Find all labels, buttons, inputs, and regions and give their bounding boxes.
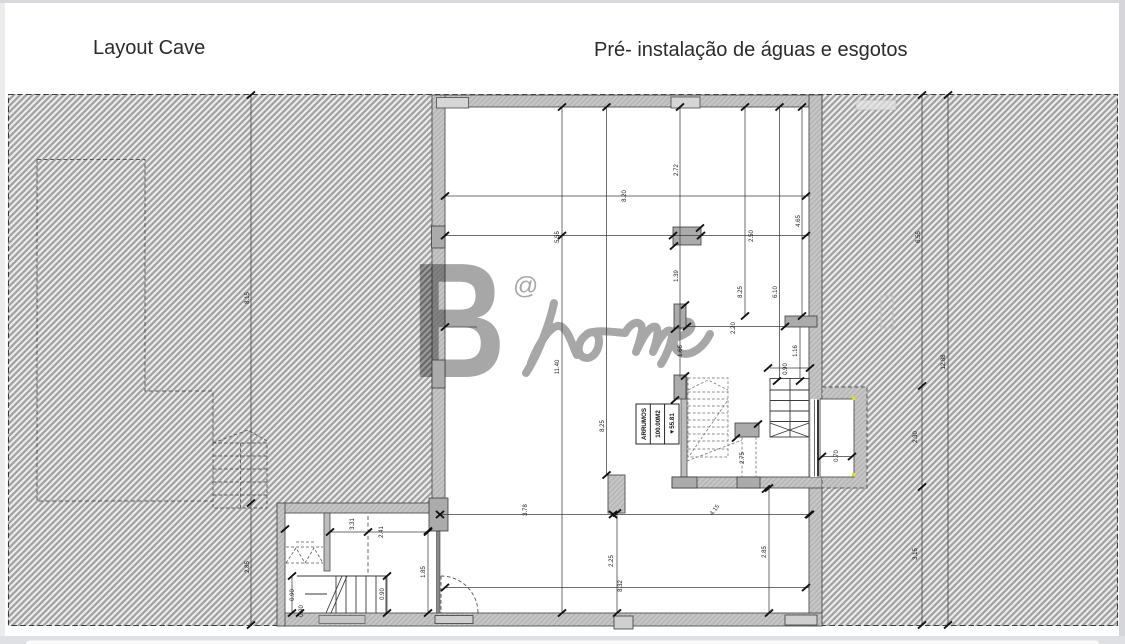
svg-text:2.85: 2.85 xyxy=(762,546,768,558)
svg-text:2.30: 2.30 xyxy=(913,431,919,443)
svg-text:1.16: 1.16 xyxy=(793,345,799,357)
svg-text:Layout Cave: Layout Cave xyxy=(93,37,205,59)
svg-text:3.15: 3.15 xyxy=(913,548,919,560)
svg-text:11.40: 11.40 xyxy=(555,359,561,374)
svg-text:▼55.81: ▼55.81 xyxy=(669,413,676,435)
svg-text:100.00M2: 100.00M2 xyxy=(655,410,662,438)
svg-text:1.85: 1.85 xyxy=(421,566,427,578)
svg-text:ARRUMOS: ARRUMOS xyxy=(641,408,648,440)
svg-text:3.31: 3.31 xyxy=(350,518,356,530)
svg-text:2.72: 2.72 xyxy=(674,164,680,176)
svg-text:0.90: 0.90 xyxy=(299,605,305,617)
svg-text:2.41: 2.41 xyxy=(379,526,385,538)
svg-text:6.10: 6.10 xyxy=(773,286,779,298)
svg-text:8.20: 8.20 xyxy=(622,190,628,202)
svg-text:6.55: 6.55 xyxy=(916,231,922,243)
svg-text:2.25: 2.25 xyxy=(609,555,615,567)
svg-text:@: @ xyxy=(513,272,538,300)
svg-text:2.85: 2.85 xyxy=(245,561,251,573)
svg-text:5.55: 5.55 xyxy=(555,231,561,243)
svg-text:8.15: 8.15 xyxy=(245,292,251,304)
svg-text:8.32: 8.32 xyxy=(618,580,624,592)
svg-text:8.25: 8.25 xyxy=(738,286,744,298)
svg-text:8.25: 8.25 xyxy=(600,420,606,432)
svg-text:4.65: 4.65 xyxy=(796,215,802,227)
svg-text:2.20: 2.20 xyxy=(731,322,737,334)
svg-text:1.66: 1.66 xyxy=(678,345,684,357)
svg-text:0.90: 0.90 xyxy=(290,589,296,601)
svg-text:3.78: 3.78 xyxy=(523,504,529,516)
svg-text:0.90: 0.90 xyxy=(783,363,789,375)
svg-text:12.88: 12.88 xyxy=(941,354,947,370)
svg-text:0.90: 0.90 xyxy=(380,588,386,600)
svg-text:1.39: 1.39 xyxy=(674,270,680,282)
svg-text:2.50: 2.50 xyxy=(749,230,755,242)
svg-text:0.70: 0.70 xyxy=(834,450,840,462)
svg-text:Pré- instalação de águas e esg: Pré- instalação de águas e esgotos xyxy=(594,39,908,61)
svg-text:2.75: 2.75 xyxy=(740,452,746,464)
svg-text:B: B xyxy=(411,230,506,412)
